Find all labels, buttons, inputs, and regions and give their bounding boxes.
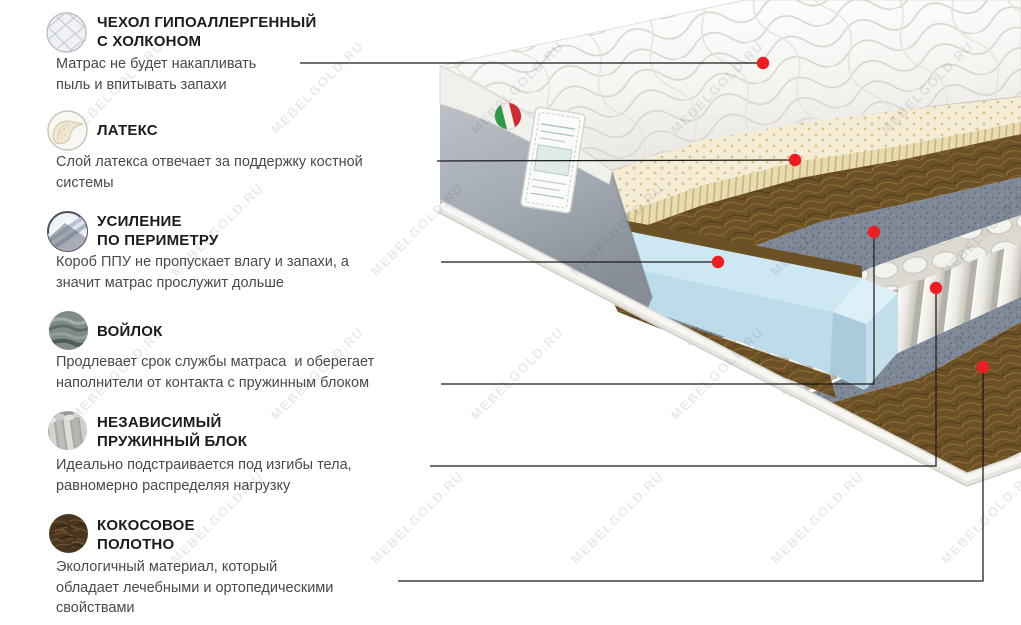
quilted-cover-icon xyxy=(46,12,87,53)
marker-dot-cover xyxy=(757,57,769,69)
feature-title-coco: КОКОСОВОЕ ПОЛОТНО xyxy=(97,516,195,554)
feature-title-perimeter: УСИЛЕНИЕ ПО ПЕРИМЕТРУ xyxy=(97,212,218,250)
feature-title-latex: ЛАТЕКС xyxy=(97,121,158,140)
feature-description-cover: Матрас не будет накапливать пыль и впиты… xyxy=(56,54,256,95)
feature-description-coco: Экологичный материал, который обладает л… xyxy=(56,557,333,619)
spring-block-icon xyxy=(47,410,88,451)
marker-dot-latex xyxy=(789,154,801,166)
feature-description-latex: Слой латекса отвечает за поддержку костн… xyxy=(56,152,363,193)
marker-dot-perimeter xyxy=(712,256,724,268)
felt-icon xyxy=(48,310,89,351)
feature-description-springs: Идеально подстраивается под изгибы тела,… xyxy=(56,455,352,496)
feature-title-springs: НЕЗАВИСИМЫЙ ПРУЖИННЫЙ БЛОК xyxy=(97,413,247,451)
mattress-layers-infographic: MEBELGOLD.RU MEBELGOLD.RU MEBELGOLD.RU M… xyxy=(0,0,1021,625)
perimeter-reinforcement-icon xyxy=(47,211,88,252)
marker-dot-springs xyxy=(930,282,942,294)
marker-dot-coco xyxy=(977,361,989,373)
coconut-coir-icon xyxy=(48,513,89,554)
feature-description-perimeter: Короб ППУ не пропускает влагу и запахи, … xyxy=(56,252,349,293)
latex-icon xyxy=(47,110,88,151)
feature-description-felt: Продлевает срок службы матраса и оберега… xyxy=(56,352,374,393)
feature-title-cover: ЧЕХОЛ ГИПОАЛЛЕРГЕННЫЙ С ХОЛКОНОМ xyxy=(97,13,316,51)
marker-dot-felt xyxy=(868,226,880,238)
feature-title-felt: ВОЙЛОК xyxy=(97,322,162,341)
